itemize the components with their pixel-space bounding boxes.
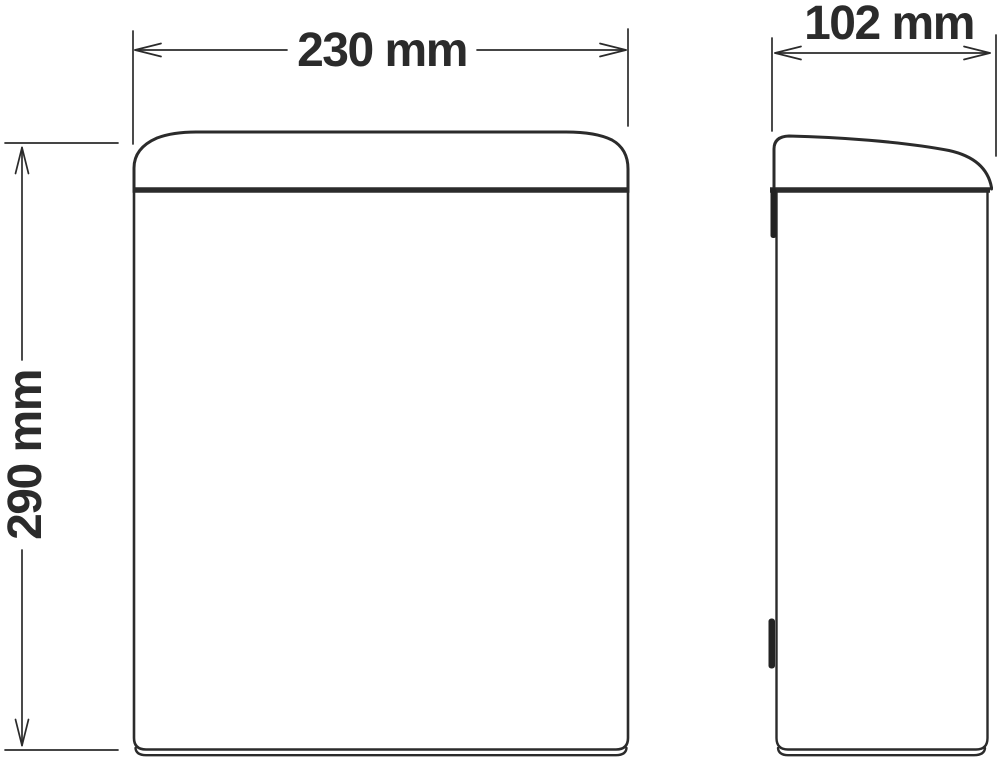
side-body-outline <box>777 193 988 750</box>
front-body-outline <box>134 193 628 750</box>
front-lid-outline <box>134 132 628 189</box>
hinge-tab-bottom-icon <box>769 619 776 669</box>
drawing-canvas: 230 mm 102 mm 290 mm <box>0 0 1000 763</box>
height-dimension-label: 290 mm <box>0 370 52 540</box>
depth-dimension-label: 102 mm <box>804 0 974 50</box>
hinge-tab-top-icon <box>771 188 777 238</box>
side-lid-outline <box>774 136 992 189</box>
front-view <box>133 132 630 755</box>
width-dimension-label: 230 mm <box>297 24 467 77</box>
side-view <box>769 136 992 755</box>
technical-drawing: 230 mm 102 mm 290 mm <box>0 0 1000 763</box>
